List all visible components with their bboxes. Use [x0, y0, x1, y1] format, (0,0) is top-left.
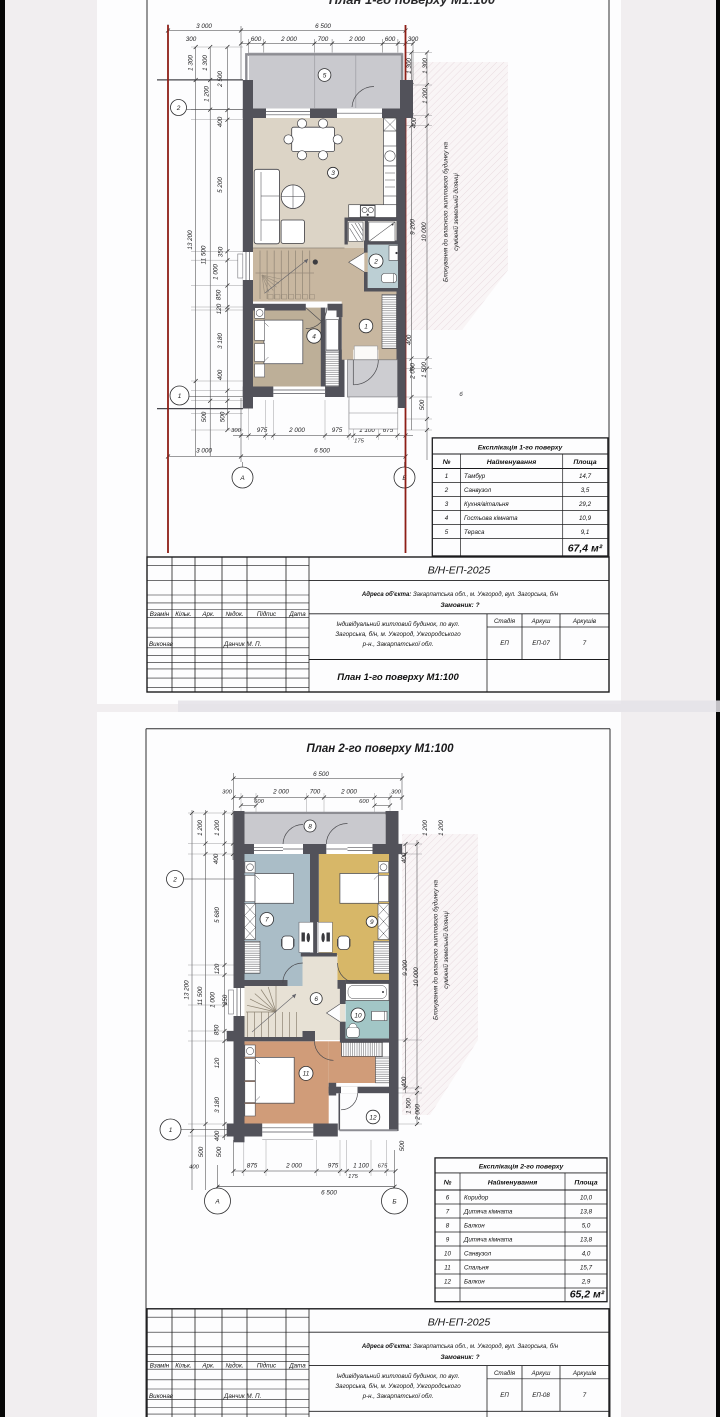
- svg-text:9: 9: [370, 919, 374, 926]
- svg-text:1 200: 1 200: [438, 820, 445, 836]
- svg-text:3 180: 3 180: [214, 1097, 221, 1113]
- svg-text:А: А: [239, 475, 244, 482]
- svg-text:300: 300: [186, 36, 197, 43]
- svg-text:Найменування: Найменування: [487, 458, 537, 466]
- svg-text:ЕП-07: ЕП-07: [532, 640, 550, 647]
- svg-text:А: А: [214, 1198, 219, 1205]
- svg-text:10: 10: [444, 1250, 451, 1257]
- svg-text:1 500: 1 500: [421, 362, 428, 378]
- svg-text:175: 175: [348, 1174, 358, 1180]
- svg-text:Кільк.: Кільк.: [175, 611, 191, 618]
- svg-text:Балкон: Балкон: [464, 1278, 485, 1285]
- svg-text:1 200: 1 200: [197, 820, 204, 836]
- svg-text:3 180: 3 180: [217, 333, 224, 349]
- svg-text:Індивідуальний житловий будино: Індивідуальний житловий будинок, по вул.: [337, 621, 460, 628]
- svg-text:4: 4: [312, 333, 316, 340]
- svg-text:6 500: 6 500: [321, 1190, 337, 1197]
- svg-text:300: 300: [408, 36, 419, 43]
- svg-text:Експлікація 2-го поверху: Експлікація 2-го поверху: [479, 1163, 565, 1171]
- svg-text:9,1: 9,1: [581, 529, 590, 536]
- svg-text:875: 875: [247, 1163, 258, 1170]
- svg-text:Дитяча кімната: Дитяча кімната: [463, 1208, 513, 1215]
- svg-text:Блокування до власного житлово: Блокування до власного житлового будинку…: [442, 142, 450, 282]
- svg-text:6 500: 6 500: [314, 448, 330, 455]
- svg-text:1 200: 1 200: [422, 820, 429, 836]
- svg-text:ЕП: ЕП: [500, 1392, 509, 1399]
- svg-text:29,2: 29,2: [578, 501, 592, 508]
- svg-text:Данчик М. П.: Данчик М. П.: [223, 1393, 261, 1400]
- svg-text:2 000: 2 000: [415, 1104, 422, 1121]
- svg-text:2: 2: [176, 105, 181, 112]
- svg-text:13,8: 13,8: [580, 1208, 593, 1215]
- svg-text:Балкон: Балкон: [464, 1222, 485, 1229]
- svg-text:600: 600: [385, 36, 396, 43]
- svg-text:Б: Б: [392, 1198, 396, 1205]
- svg-text:975: 975: [328, 1163, 339, 1170]
- svg-text:400: 400: [411, 117, 418, 128]
- svg-text:суміжній земельній ділянці: суміжній земельній ділянці: [442, 911, 450, 989]
- svg-text:3 000: 3 000: [196, 23, 212, 30]
- svg-text:В/Н-ЕП-2025: В/Н-ЕП-2025: [428, 565, 491, 577]
- svg-text:Гостьова кімната: Гостьова кімната: [464, 515, 518, 522]
- svg-text:600: 600: [359, 799, 369, 805]
- svg-text:5,0: 5,0: [582, 1222, 591, 1229]
- svg-text:10,9: 10,9: [579, 515, 592, 522]
- svg-text:6: 6: [446, 1194, 450, 1201]
- svg-text:10,0: 10,0: [580, 1194, 593, 1201]
- svg-text:4,0: 4,0: [582, 1250, 591, 1257]
- svg-text:Арк.: Арк.: [201, 1363, 214, 1370]
- svg-text:850: 850: [214, 1024, 221, 1035]
- svg-text:500: 500: [216, 1146, 223, 1157]
- svg-text:7: 7: [446, 1208, 450, 1215]
- svg-text:Найменування: Найменування: [488, 1179, 538, 1187]
- svg-text:Кільк.: Кільк.: [175, 1363, 191, 1370]
- svg-text:2: 2: [172, 876, 177, 883]
- svg-text:1: 1: [364, 323, 368, 330]
- svg-text:8: 8: [308, 823, 312, 830]
- svg-text:2 000: 2 000: [409, 363, 416, 380]
- svg-text:10 000: 10 000: [413, 967, 420, 987]
- svg-text:2 000: 2 000: [285, 1163, 302, 1170]
- svg-text:5: 5: [445, 529, 449, 536]
- svg-text:1 300: 1 300: [406, 58, 413, 74]
- svg-text:Замовник: ?: Замовник: ?: [441, 1354, 480, 1361]
- svg-text:600: 600: [254, 799, 264, 805]
- svg-text:Дата: Дата: [288, 611, 306, 618]
- svg-text:ЕП-08: ЕП-08: [532, 1392, 550, 1399]
- svg-text:2: 2: [373, 258, 378, 265]
- svg-text:1 500: 1 500: [406, 1098, 413, 1114]
- svg-text:15,7: 15,7: [580, 1264, 593, 1271]
- svg-text:Взамін: Взамін: [150, 611, 170, 618]
- svg-text:Данчик М. П.: Данчик М. П.: [223, 641, 261, 648]
- svg-text:р-н., Закарпатської обл.: р-н., Закарпатської обл.: [362, 641, 434, 648]
- svg-text:3: 3: [331, 170, 335, 177]
- svg-text:Площа: Площа: [574, 1180, 598, 1187]
- svg-text:700: 700: [318, 36, 329, 43]
- svg-text:13,8: 13,8: [580, 1236, 593, 1243]
- svg-text:2 000: 2 000: [348, 36, 365, 43]
- svg-text:3 000: 3 000: [196, 448, 212, 455]
- svg-text:1 200: 1 200: [214, 820, 221, 836]
- svg-text:400: 400: [214, 1130, 221, 1141]
- svg-text:Аркуш: Аркуш: [531, 618, 552, 625]
- svg-text:120: 120: [216, 303, 223, 314]
- svg-text:13 200: 13 200: [187, 230, 194, 250]
- svg-text:975: 975: [257, 427, 268, 434]
- svg-text:3,5: 3,5: [581, 487, 590, 494]
- svg-text:600: 600: [251, 36, 262, 43]
- svg-text:6 500: 6 500: [315, 23, 331, 30]
- svg-text:1 300: 1 300: [188, 55, 195, 71]
- svg-text:400: 400: [213, 853, 220, 864]
- svg-text:Площа: Площа: [573, 459, 597, 466]
- svg-text:500: 500: [220, 411, 227, 422]
- svg-text:Аркушів: Аркушів: [572, 1370, 597, 1377]
- svg-text:11: 11: [444, 1264, 450, 1271]
- svg-text:10: 10: [354, 1012, 362, 1019]
- svg-text:120: 120: [214, 1057, 221, 1068]
- svg-text:Тамбур: Тамбур: [464, 473, 486, 480]
- svg-text:Загорська, б/н, м. Ужгород, Уж: Загорська, б/н, м. Ужгород, Ужгородськог…: [335, 1383, 461, 1390]
- svg-text:Індивідуальний житловий будино: Індивідуальний житловий будинок, по вул.: [337, 1373, 460, 1380]
- svg-text:350: 350: [222, 994, 229, 1005]
- svg-text:Дитяча кімната: Дитяча кімната: [463, 1236, 513, 1243]
- svg-text:Замовник: ?: Замовник: ?: [441, 602, 480, 609]
- svg-text:Блокування до власного житлово: Блокування до власного житлового будинку…: [432, 880, 440, 1020]
- svg-text:6 500: 6 500: [313, 771, 329, 778]
- svg-text:3: 3: [445, 501, 449, 508]
- svg-text:№док.: №док.: [225, 1363, 243, 1370]
- svg-text:Санвузол: Санвузол: [464, 487, 492, 494]
- svg-text:1 000: 1 000: [210, 992, 217, 1008]
- svg-text:300: 300: [231, 428, 241, 434]
- svg-text:120: 120: [214, 963, 221, 974]
- svg-text:1 000: 1 000: [213, 264, 220, 280]
- svg-text:1: 1: [445, 473, 448, 480]
- svg-text:7: 7: [265, 917, 269, 924]
- svg-text:План 2-го поверху М1:100: План 2-го поверху М1:100: [306, 743, 454, 755]
- svg-text:500: 500: [419, 399, 426, 410]
- svg-text:Санвузол: Санвузол: [464, 1250, 492, 1257]
- svg-text:Підпис: Підпис: [257, 1363, 277, 1370]
- svg-text:13 200: 13 200: [184, 980, 191, 1000]
- svg-text:850: 850: [216, 289, 223, 300]
- svg-text:Виконав: Виконав: [149, 641, 174, 648]
- svg-text:Підпис: Підпис: [257, 611, 277, 618]
- svg-text:ЕП: ЕП: [500, 640, 509, 647]
- svg-text:Виконав: Виконав: [149, 1393, 174, 1400]
- svg-text:Аркушів: Аркушів: [572, 618, 597, 625]
- svg-text:975: 975: [332, 427, 343, 434]
- svg-text:11 500: 11 500: [197, 986, 204, 1005]
- svg-text:Дата: Дата: [288, 1363, 306, 1370]
- svg-text:400: 400: [189, 1165, 199, 1171]
- svg-text:План 1-го поверху М1:100: План 1-го поверху М1:100: [329, 0, 496, 7]
- svg-text:2,9: 2,9: [581, 1278, 591, 1285]
- svg-text:400: 400: [217, 116, 224, 127]
- svg-text:7: 7: [583, 640, 587, 647]
- svg-text:300: 300: [222, 790, 232, 796]
- svg-text:12: 12: [369, 1114, 377, 1121]
- svg-text:7: 7: [583, 1392, 587, 1399]
- svg-text:10 000: 10 000: [421, 222, 428, 242]
- svg-text:14,7: 14,7: [579, 473, 592, 480]
- svg-text:6: 6: [314, 996, 318, 1003]
- svg-text:2 000: 2 000: [280, 36, 297, 43]
- svg-text:Аркуш: Аркуш: [531, 1370, 552, 1377]
- svg-text:№: №: [444, 1180, 452, 1187]
- svg-text:Стадія: Стадія: [494, 1370, 516, 1377]
- svg-text:1 300: 1 300: [422, 58, 429, 74]
- svg-text:Адреса об'єкта: Закарпатська о: Адреса об'єкта: Закарпатська обл., м. Уж…: [361, 591, 559, 598]
- svg-text:8: 8: [446, 1222, 450, 1229]
- svg-text:400: 400: [406, 334, 413, 345]
- svg-text:Спальня: Спальня: [464, 1264, 489, 1271]
- svg-text:Експлікація 1-го поверху: Експлікація 1-го поверху: [478, 444, 564, 452]
- svg-text:4: 4: [445, 515, 449, 522]
- svg-text:Взамін: Взамін: [150, 1363, 170, 1370]
- svg-text:В/Н-ЕП-2025: В/Н-ЕП-2025: [428, 1316, 491, 1328]
- svg-text:№док.: №док.: [225, 611, 243, 618]
- svg-text:500: 500: [201, 411, 208, 422]
- svg-text:12: 12: [444, 1278, 451, 1285]
- svg-text:План 1-го поверху М1:100: План 1-го поверху М1:100: [337, 672, 459, 683]
- svg-text:350: 350: [218, 246, 225, 257]
- svg-text:1 100: 1 100: [353, 1163, 369, 1170]
- svg-text:2 000: 2 000: [340, 789, 357, 796]
- svg-text:5: 5: [323, 72, 327, 79]
- svg-text:Стадія: Стадія: [494, 618, 516, 625]
- svg-text:Загорська, б/н, м. Ужгород, Уж: Загорська, б/н, м. Ужгород, Ужгородськог…: [335, 631, 461, 638]
- svg-text:9 200: 9 200: [410, 219, 417, 235]
- svg-text:5 680: 5 680: [214, 907, 221, 923]
- svg-text:1: 1: [178, 393, 182, 400]
- svg-text:300: 300: [391, 790, 401, 796]
- svg-text:1 200: 1 200: [422, 88, 429, 104]
- svg-text:1 200: 1 200: [204, 86, 211, 102]
- svg-text:Коридор: Коридор: [464, 1194, 489, 1201]
- svg-text:500: 500: [399, 1140, 406, 1151]
- svg-text:9: 9: [446, 1236, 450, 1243]
- svg-text:Арк.: Арк.: [201, 611, 214, 618]
- svg-text:9 200: 9 200: [402, 960, 409, 976]
- svg-text:суміжній земельній ділянці: суміжній земельній ділянці: [452, 173, 460, 251]
- svg-text:1 300: 1 300: [202, 55, 209, 71]
- svg-text:175: 175: [354, 439, 364, 445]
- svg-text:67,4 м²: 67,4 м²: [568, 543, 603, 555]
- svg-text:Кухня/вітальня: Кухня/вітальня: [464, 501, 509, 508]
- svg-text:400: 400: [401, 1076, 408, 1087]
- svg-text:2 000: 2 000: [272, 789, 289, 796]
- svg-text:2 000: 2 000: [288, 427, 305, 434]
- svg-text:11 500: 11 500: [201, 245, 208, 264]
- svg-text:Тераса: Тераса: [464, 529, 485, 536]
- svg-text:№: №: [443, 459, 451, 466]
- svg-text:5 200: 5 200: [217, 177, 224, 193]
- svg-text:400: 400: [217, 369, 224, 380]
- svg-text:700: 700: [310, 789, 321, 796]
- svg-text:11: 11: [303, 1071, 310, 1078]
- svg-text:65,2 м²: 65,2 м²: [570, 1289, 605, 1301]
- svg-text:500: 500: [198, 1146, 205, 1157]
- svg-text:2: 2: [444, 487, 449, 494]
- svg-text:1: 1: [169, 1127, 173, 1134]
- svg-text:р-н., Закарпатської обл.: р-н., Закарпатської обл.: [362, 1393, 434, 1400]
- svg-text:Адреса об'єкта: Закарпатська о: Адреса об'єкта: Закарпатська обл., м. Уж…: [361, 1343, 559, 1350]
